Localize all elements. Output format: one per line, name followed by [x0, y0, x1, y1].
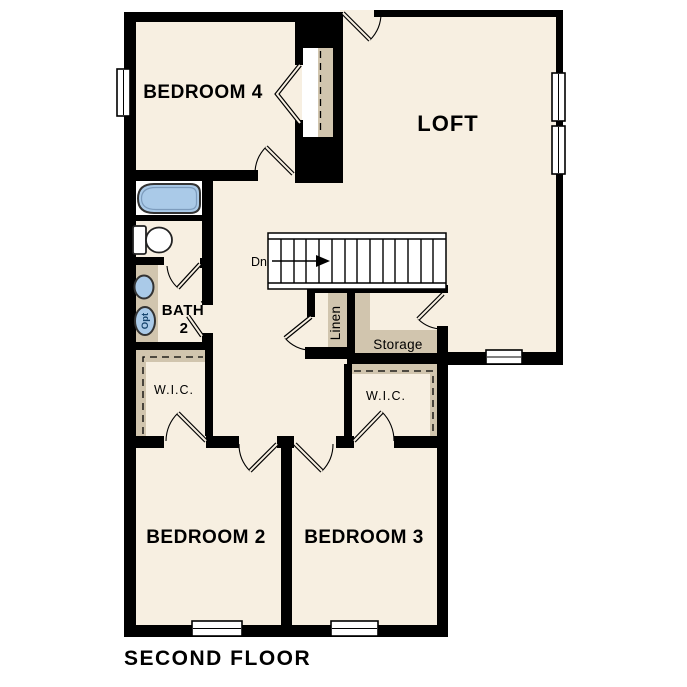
wic-left-floor — [146, 362, 205, 436]
wall — [374, 10, 563, 17]
wall — [437, 326, 448, 625]
wic-right-floor — [352, 374, 430, 436]
wall — [124, 170, 258, 181]
wall — [556, 10, 563, 362]
toilet-bowl — [146, 228, 172, 253]
wall — [344, 364, 352, 436]
window — [486, 350, 522, 364]
wall — [336, 436, 354, 448]
bedroom4-closet-floor — [302, 48, 318, 137]
storage-label: Storage — [373, 337, 422, 352]
bedroom2-label: BEDROOM 2 — [146, 527, 266, 548]
wall — [124, 342, 213, 350]
optional-sink-label: Opt — [140, 312, 151, 329]
wall — [295, 48, 303, 65]
bedroom4-label: BEDROOM 4 — [143, 82, 263, 103]
staircase: Dn — [251, 233, 446, 289]
wall — [124, 625, 448, 637]
wall — [281, 448, 292, 625]
wall — [347, 353, 448, 364]
bedroom3-label: BEDROOM 3 — [304, 527, 424, 548]
window — [331, 621, 378, 636]
window — [552, 126, 565, 174]
bath-label-line1: BATH — [162, 302, 205, 319]
window — [552, 73, 565, 121]
linen-label: Linen — [328, 306, 343, 341]
loft-label: LOFT — [417, 111, 478, 136]
vanity-sink — [135, 276, 154, 299]
wall — [205, 350, 213, 436]
wall — [206, 436, 239, 448]
wic-left-label: W.I.C. — [154, 383, 194, 397]
toilet-tank — [133, 226, 146, 254]
wall — [136, 215, 202, 221]
wall — [277, 436, 294, 448]
bath-label-line2: 2 — [180, 320, 189, 337]
wall — [307, 293, 315, 317]
loft-floor — [340, 10, 563, 365]
page-title: SECOND FLOOR — [124, 647, 311, 670]
wall — [124, 436, 164, 448]
window — [192, 621, 242, 636]
wall — [347, 293, 355, 359]
window — [117, 69, 130, 116]
stairs-down-label: Dn — [251, 255, 267, 269]
wall — [202, 181, 213, 305]
floor-plan: Dn Opt — [0, 0, 687, 687]
wall — [305, 347, 347, 359]
wall — [124, 257, 164, 265]
wic-right-label: W.I.C. — [366, 389, 406, 403]
wall — [295, 137, 343, 183]
